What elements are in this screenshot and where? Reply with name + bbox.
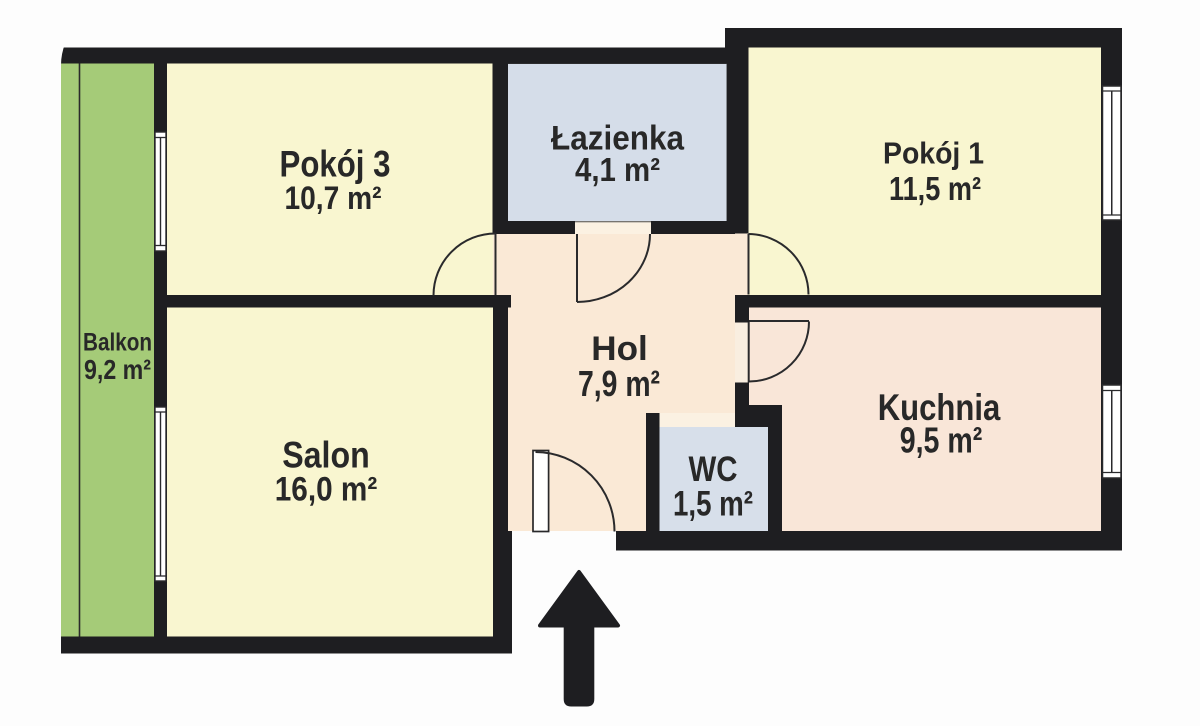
svg-text:WC: WC bbox=[689, 450, 738, 489]
svg-text:10,7 m²: 10,7 m² bbox=[285, 180, 382, 216]
svg-text:Pokój 3: Pokój 3 bbox=[280, 144, 391, 185]
svg-text:16,0 m²: 16,0 m² bbox=[275, 471, 378, 509]
svg-text:9,2 m²: 9,2 m² bbox=[84, 354, 151, 385]
svg-text:9,5 m²: 9,5 m² bbox=[900, 420, 983, 461]
svg-text:7,9 m²: 7,9 m² bbox=[578, 363, 660, 404]
svg-text:1,5 m²: 1,5 m² bbox=[673, 485, 753, 524]
svg-text:11,5 m²: 11,5 m² bbox=[889, 170, 981, 207]
svg-text:Balkon: Balkon bbox=[83, 329, 152, 357]
svg-text:Salon: Salon bbox=[282, 435, 370, 476]
svg-text:4,1 m²: 4,1 m² bbox=[575, 151, 660, 188]
svg-text:Pokój 1: Pokój 1 bbox=[883, 136, 984, 171]
